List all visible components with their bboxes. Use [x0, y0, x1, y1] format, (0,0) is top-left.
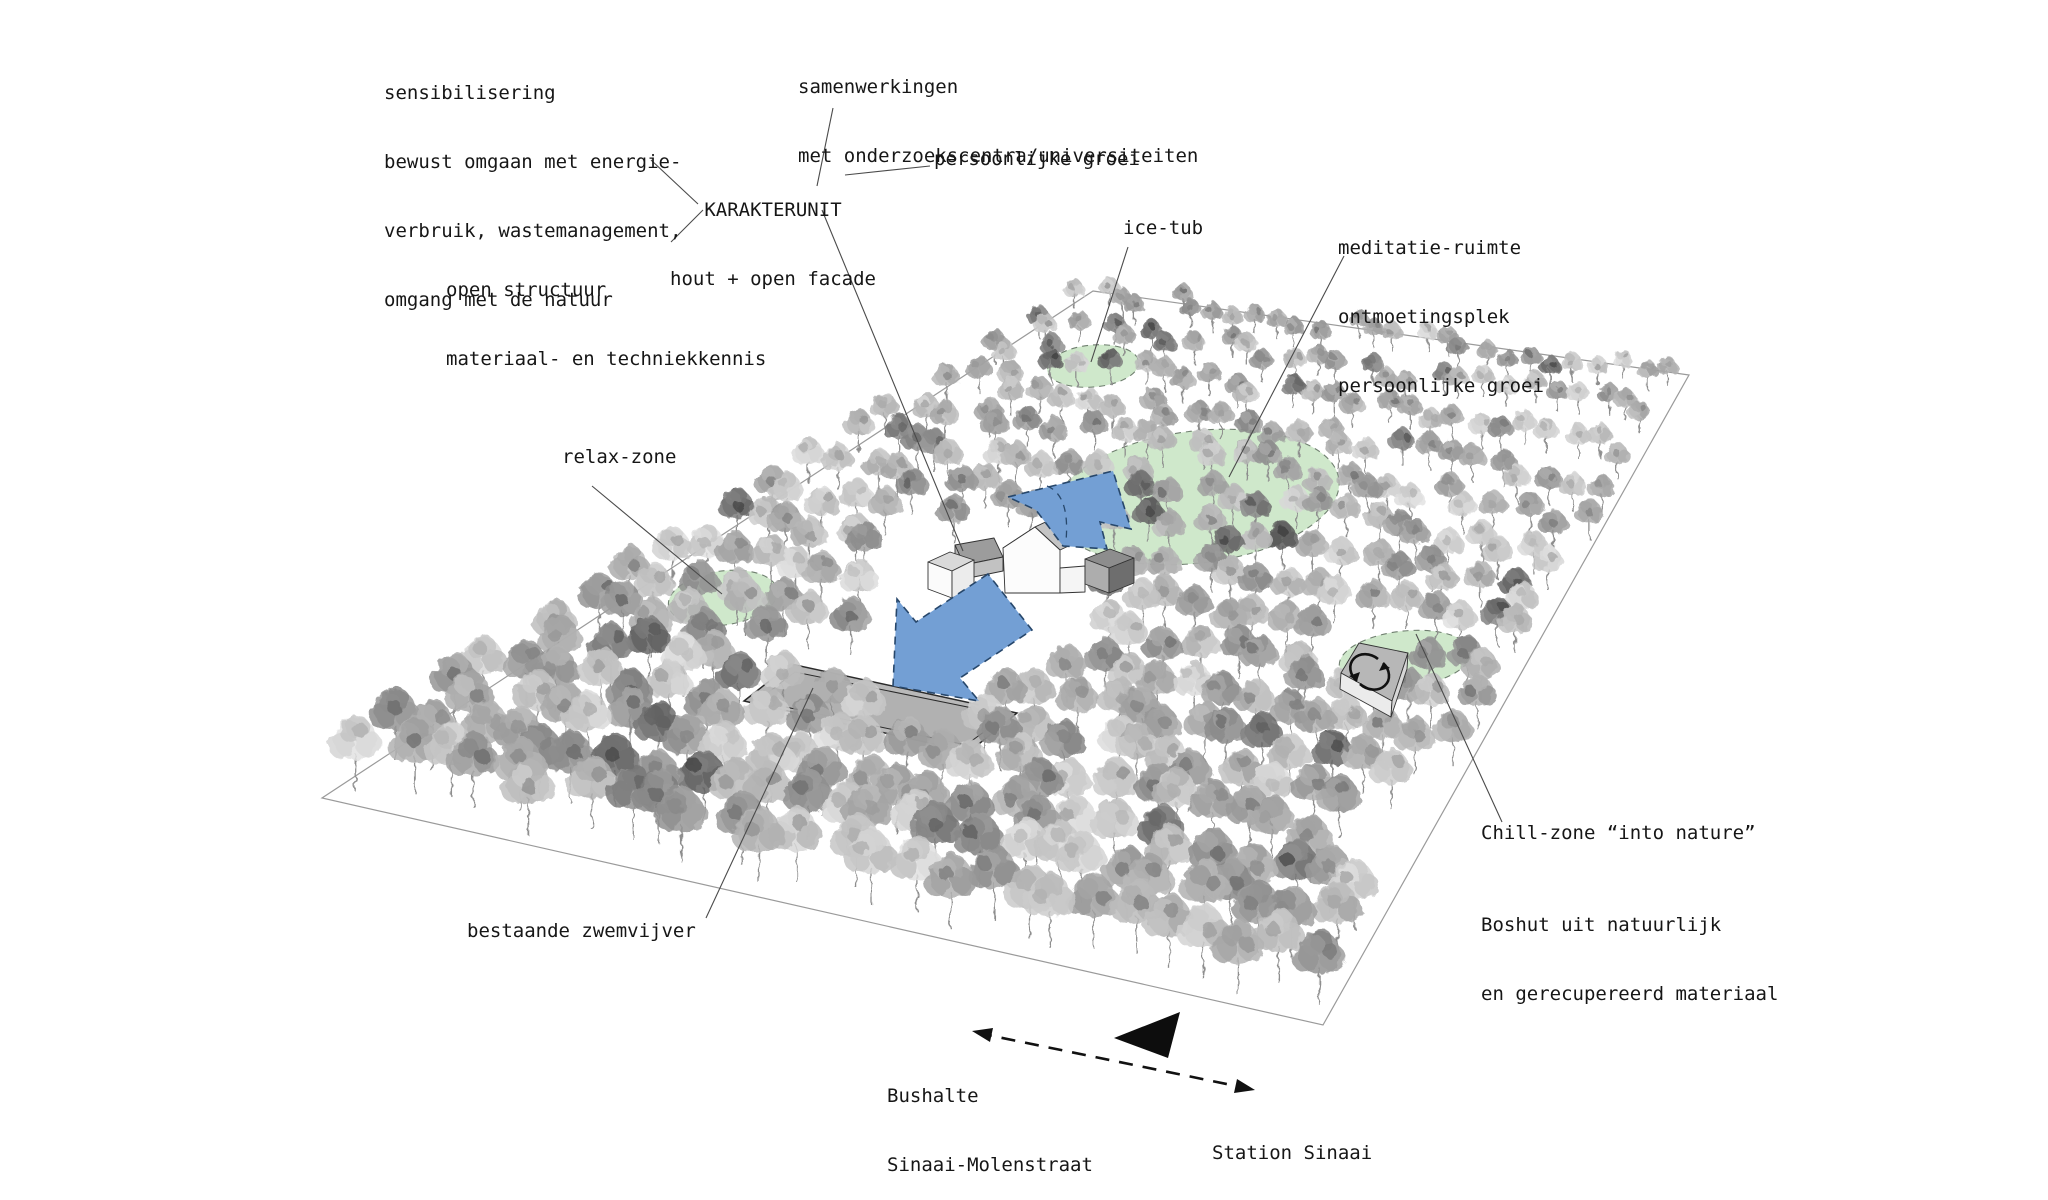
label-meditatie: meditatie-ruimte ontmoetingsplek persoon… [1338, 191, 1544, 421]
label-line: Bushalte [887, 1085, 1093, 1108]
label-ice-tub: ice-tub [1123, 217, 1203, 240]
label-persoonlijke-groei: persoonlijke groei [934, 148, 1140, 171]
label-open-structuur: open structuur materiaal- en techniekken… [446, 233, 766, 394]
label-bushalte: Bushalte Sinaai-Molenstraat 1,5km [887, 1039, 1093, 1200]
label-line: Station Sinaai [1212, 1142, 1372, 1165]
label-zwemvijver: bestaande zwemvijver [467, 920, 696, 943]
label-station: Station Sinaai 2,1km [1212, 1096, 1372, 1200]
label-line: bewust omgaan met energie- [384, 151, 681, 174]
arrowhead-station-icon [1234, 1079, 1255, 1093]
label-chill-zone: Chill-zone “into nature” [1481, 822, 1756, 845]
label-line: sensibilisering [384, 82, 681, 105]
label-line: en gerecupereerd materiaal [1481, 983, 1778, 1006]
label-boshut: Boshut uit natuurlijk en gerecupereerd m… [1481, 868, 1778, 1029]
label-line: Boshut uit natuurlijk [1481, 914, 1778, 937]
label-relax-zone: relax-zone [562, 446, 676, 469]
label-line: persoonlijke groei [1338, 375, 1544, 398]
label-line: meditatie-ruimte [1338, 237, 1544, 260]
site-diagram: sensibilisering bewust omgaan met energi… [0, 0, 2048, 1200]
label-line: Sinaai-Molenstraat [887, 1154, 1093, 1177]
label-line: materiaal- en techniekkennis [446, 348, 766, 371]
label-line: samenwerkingen [798, 76, 1198, 99]
label-line: KARAKTERUNIT [648, 199, 898, 222]
direction-triangle-icon [1114, 1012, 1180, 1058]
label-line: open structuur [446, 279, 766, 302]
label-line: ontmoetingsplek [1338, 306, 1544, 329]
